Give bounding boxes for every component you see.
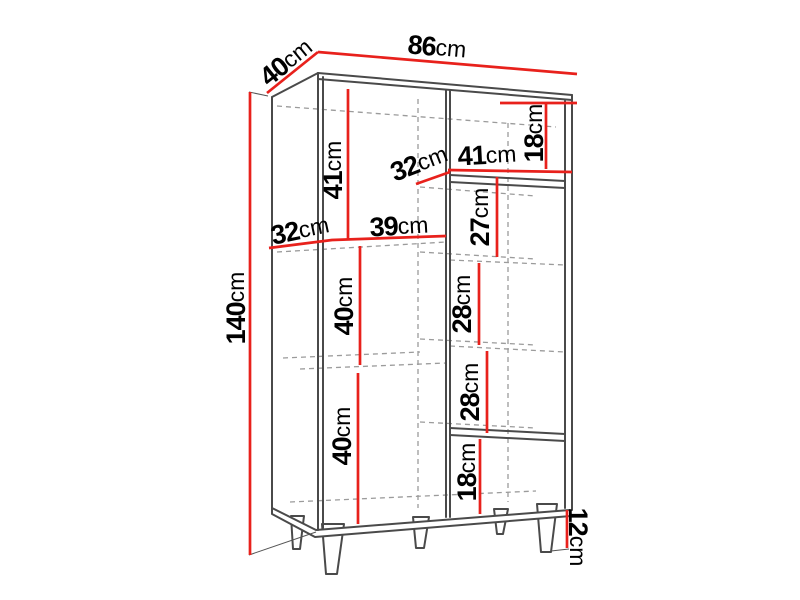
dim-label-top-width: 86cm [406,29,467,64]
cabinet-dimension-diagram: 40cm86cm140cm41cm32cm39cm32cm41cm18cm27c… [0,0,800,600]
dim-label-right-opening-2: 28cm [447,275,477,334]
height-ext-top [249,92,268,96]
dimension-labels: 40cm86cm140cm41cm32cm39cm32cm41cm18cm27c… [221,29,593,566]
right-shelfD-back-hidden [420,422,536,428]
dim-label-right-top-gap: 18cm [519,104,549,163]
dim-label-right-shelf-width: 41cm [457,138,517,171]
dim-label-left-middle-opening: 40cm [329,277,359,336]
back-bottom-edge [290,491,536,502]
height-ext-bottom [249,532,316,555]
right-shelfB-back-hidden [420,252,536,259]
dim-label-left-shelf-width: 39cm [369,209,429,242]
dim-label-side-height: 140cm [221,272,251,345]
dim-label-leg-height: 12cm [563,508,593,567]
left-shelf2-back-hidden [283,352,420,358]
dim-label-right-bottom-gap: 18cm [452,443,482,502]
dim-label-right-shelf-depth: 32cm [386,138,452,187]
dim-label-left-bottom-opening: 40cm [327,407,357,466]
dim-label-right-opening-1: 27cm [465,188,495,247]
left-shelf2-front-hidden [300,363,446,369]
dim-label-right-opening-3: 28cm [455,363,485,422]
dim-label-left-top-opening: 41cm [318,141,348,200]
dim-label-top-depth: 40cm [254,32,319,92]
